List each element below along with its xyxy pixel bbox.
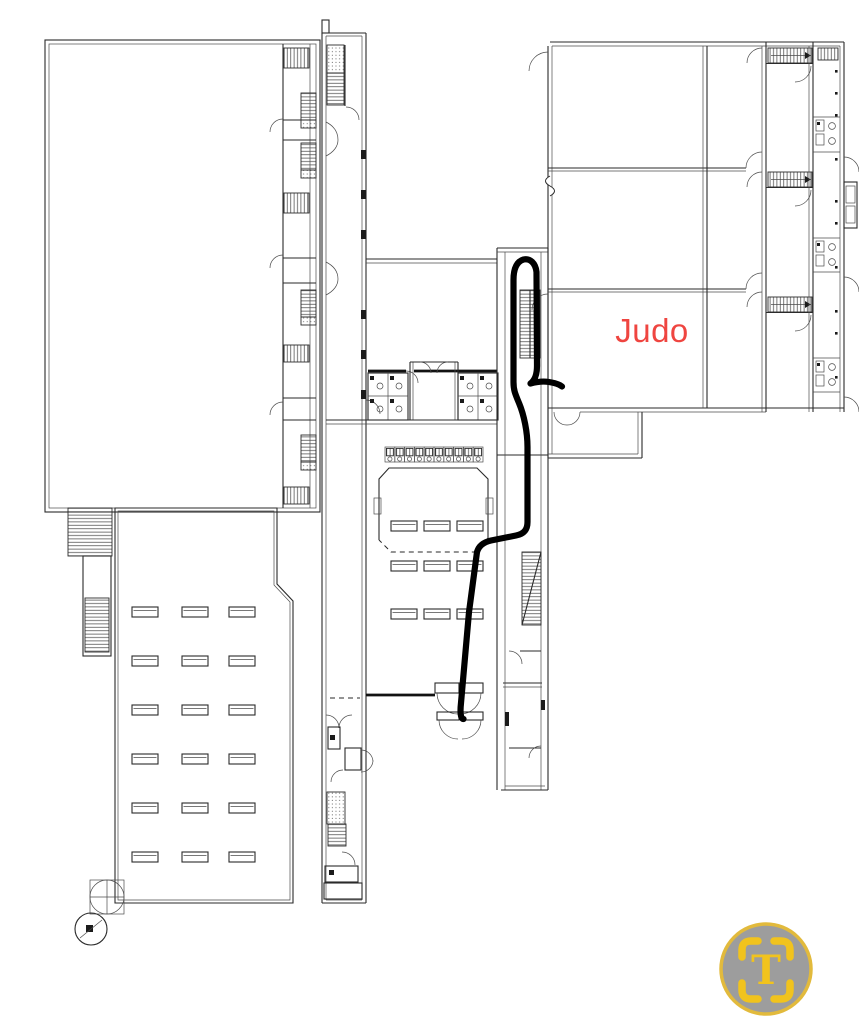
column-dots xyxy=(835,70,838,379)
stair-landing xyxy=(327,45,344,73)
stair-hatch xyxy=(284,193,309,213)
floor-plan-canvas: Judo T xyxy=(0,0,859,1024)
stair-hatch xyxy=(301,435,316,462)
stair-hatch xyxy=(284,48,309,68)
stair-hatch xyxy=(301,290,316,317)
exterior-stair xyxy=(85,598,109,652)
staircase xyxy=(327,73,344,105)
stair-hatch xyxy=(301,93,316,120)
floorplan-page: Judo T xyxy=(0,0,859,1024)
exterior-stair xyxy=(68,508,112,556)
badge-letter: T xyxy=(751,947,781,994)
stair-landing xyxy=(327,792,345,824)
judo-room-label: Judo xyxy=(615,312,689,349)
stair-hatch xyxy=(301,143,316,170)
stair-hatch xyxy=(284,345,309,362)
brand-badge: T xyxy=(721,924,811,1014)
staircase xyxy=(328,824,346,846)
stair-hatch xyxy=(284,487,309,504)
